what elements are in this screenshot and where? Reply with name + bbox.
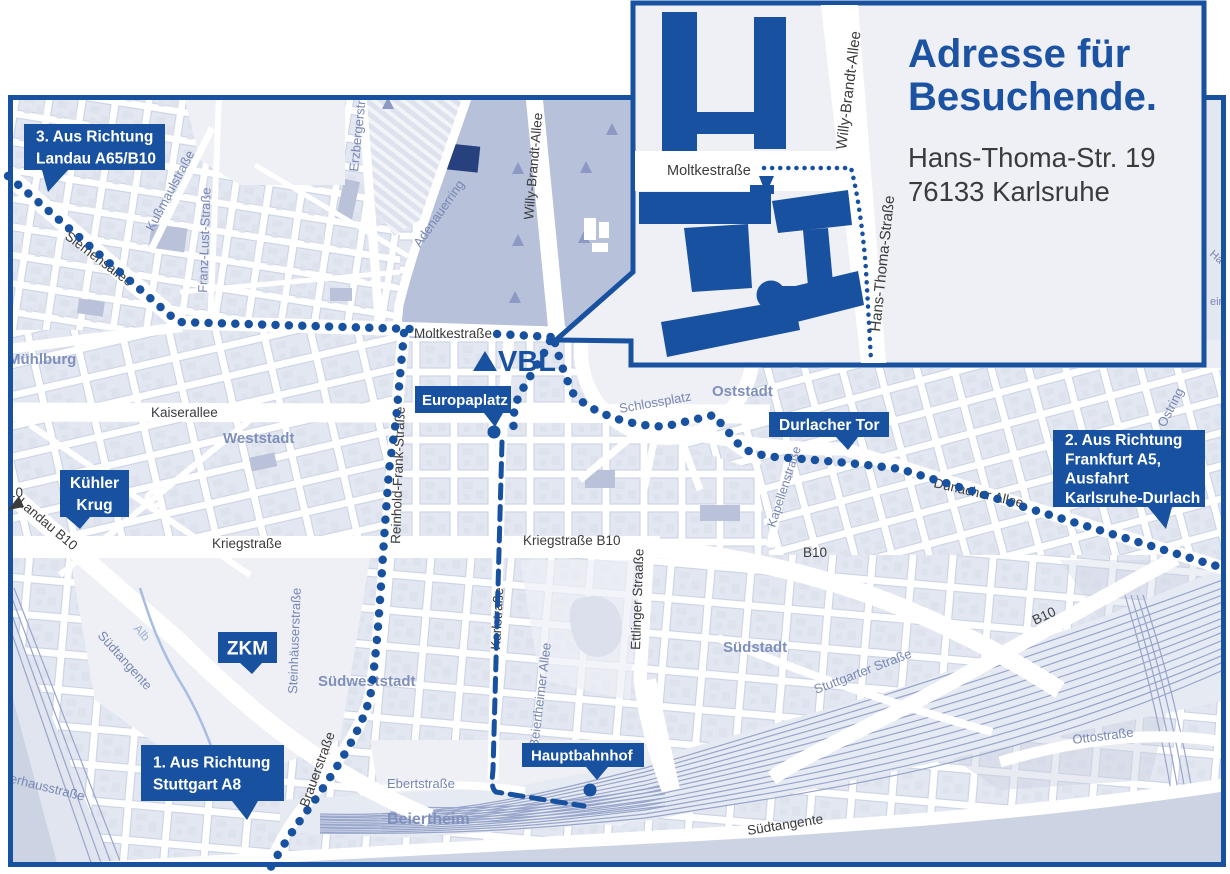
svg-text:1. Aus Richtung: 1. Aus Richtung	[153, 755, 270, 772]
svg-text:Südstadt: Südstadt	[723, 639, 787, 656]
svg-text:Ausfahrt: Ausfahrt	[1065, 471, 1129, 488]
svg-text:Moltkestraße: Moltkestraße	[414, 326, 492, 341]
svg-text:Hauptbahnhof: Hauptbahnhof	[531, 747, 634, 764]
svg-text:2. Aus Richtung: 2. Aus Richtung	[1065, 432, 1182, 449]
svg-text:Durlacher Tor: Durlacher Tor	[779, 417, 880, 434]
svg-text:Beiertheim: Beiertheim	[387, 811, 470, 828]
svg-text:Karlsruhe-Durlach: Karlsruhe-Durlach	[1065, 490, 1200, 507]
svg-text:Kriegstraße: Kriegstraße	[212, 536, 282, 551]
svg-text:Adresse für: Adresse für	[908, 32, 1130, 76]
svg-text:Weststadt: Weststadt	[223, 430, 294, 447]
svg-text:VBL: VBL	[498, 346, 556, 378]
svg-text:Frankfurt A5,: Frankfurt A5,	[1065, 451, 1161, 468]
svg-text:Stuttgart A8: Stuttgart A8	[153, 777, 241, 794]
svg-text:Europaplatz: Europaplatz	[422, 392, 508, 409]
svg-text:76133 Karlsruhe: 76133 Karlsruhe	[908, 176, 1110, 207]
svg-text:B10: B10	[803, 545, 827, 560]
svg-text:Kriegstraße B10: Kriegstraße B10	[523, 533, 621, 548]
svg-text:ZKM: ZKM	[227, 638, 268, 659]
svg-text:Mühlburg: Mühlburg	[8, 351, 76, 368]
svg-text:3. Aus Richtung: 3. Aus Richtung	[36, 129, 153, 146]
svg-text:Besuchende.: Besuchende.	[908, 75, 1157, 119]
svg-text:Krug: Krug	[76, 497, 112, 514]
svg-text:Ebertstraße: Ebertstraße	[387, 776, 455, 791]
svg-text:Landau A65/B10: Landau A65/B10	[36, 151, 156, 168]
svg-text:Moltkestraße: Moltkestraße	[667, 163, 751, 179]
svg-text:Kaiserallee: Kaiserallee	[151, 405, 218, 420]
svg-text:Südweststadt: Südweststadt	[318, 673, 416, 690]
svg-text:Kühler: Kühler	[70, 475, 119, 492]
svg-text:Hans-Thoma-Str. 19: Hans-Thoma-Str. 19	[908, 142, 1156, 173]
svg-text:Oststadt: Oststadt	[712, 383, 773, 400]
